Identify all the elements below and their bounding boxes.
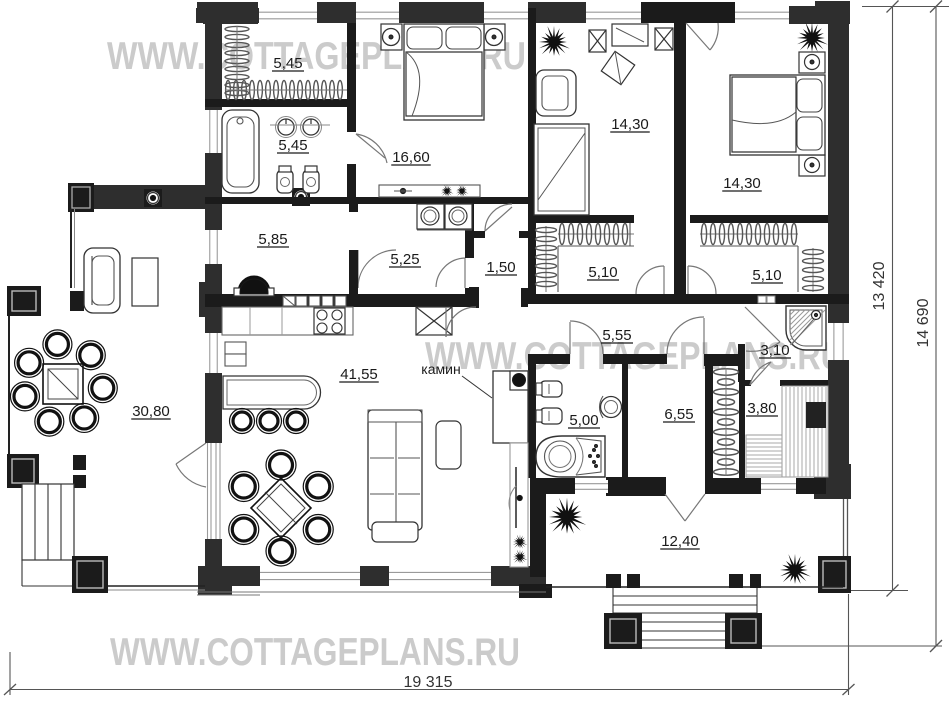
- svg-text:12,40: 12,40: [661, 533, 699, 550]
- svg-text:WWW.COTTAGEPLANS.RU: WWW.COTTAGEPLANS.RU: [110, 631, 520, 674]
- svg-text:5,45: 5,45: [273, 55, 302, 72]
- svg-text:6,55: 6,55: [664, 406, 693, 423]
- svg-text:3,10: 3,10: [760, 342, 789, 359]
- svg-text:19 315: 19 315: [404, 674, 453, 691]
- svg-text:30,80: 30,80: [132, 403, 170, 420]
- svg-text:14,30: 14,30: [611, 116, 649, 133]
- svg-text:5,55: 5,55: [602, 327, 631, 344]
- svg-text:3,80: 3,80: [747, 400, 776, 417]
- svg-text:5,10: 5,10: [752, 267, 781, 284]
- svg-text:5,45: 5,45: [278, 137, 307, 154]
- svg-text:1,50: 1,50: [486, 259, 515, 276]
- svg-text:камин: камин: [421, 361, 460, 377]
- svg-text:5,00: 5,00: [569, 412, 598, 429]
- svg-text:16,60: 16,60: [392, 149, 430, 166]
- svg-text:14 690: 14 690: [915, 298, 932, 347]
- svg-text:5,85: 5,85: [258, 231, 287, 248]
- svg-text:5,10: 5,10: [588, 264, 617, 281]
- svg-text:13 420: 13 420: [871, 261, 888, 310]
- svg-text:41,55: 41,55: [340, 366, 378, 383]
- svg-text:14,30: 14,30: [723, 175, 761, 192]
- svg-text:5,25: 5,25: [390, 251, 419, 268]
